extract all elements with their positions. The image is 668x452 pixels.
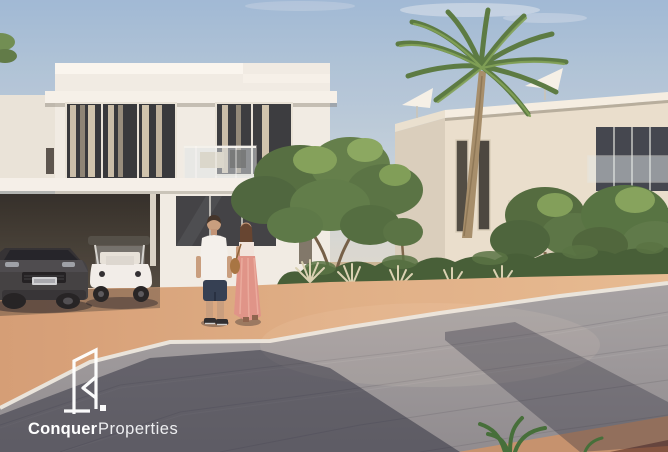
brand-name: Conquer — [28, 420, 98, 438]
rendering-image: Conquer Properties — [0, 0, 668, 452]
brand-suffix: Properties — [98, 420, 178, 438]
warm-light-overlay — [0, 0, 668, 452]
scene-svg: Conquer Properties — [0, 0, 668, 452]
